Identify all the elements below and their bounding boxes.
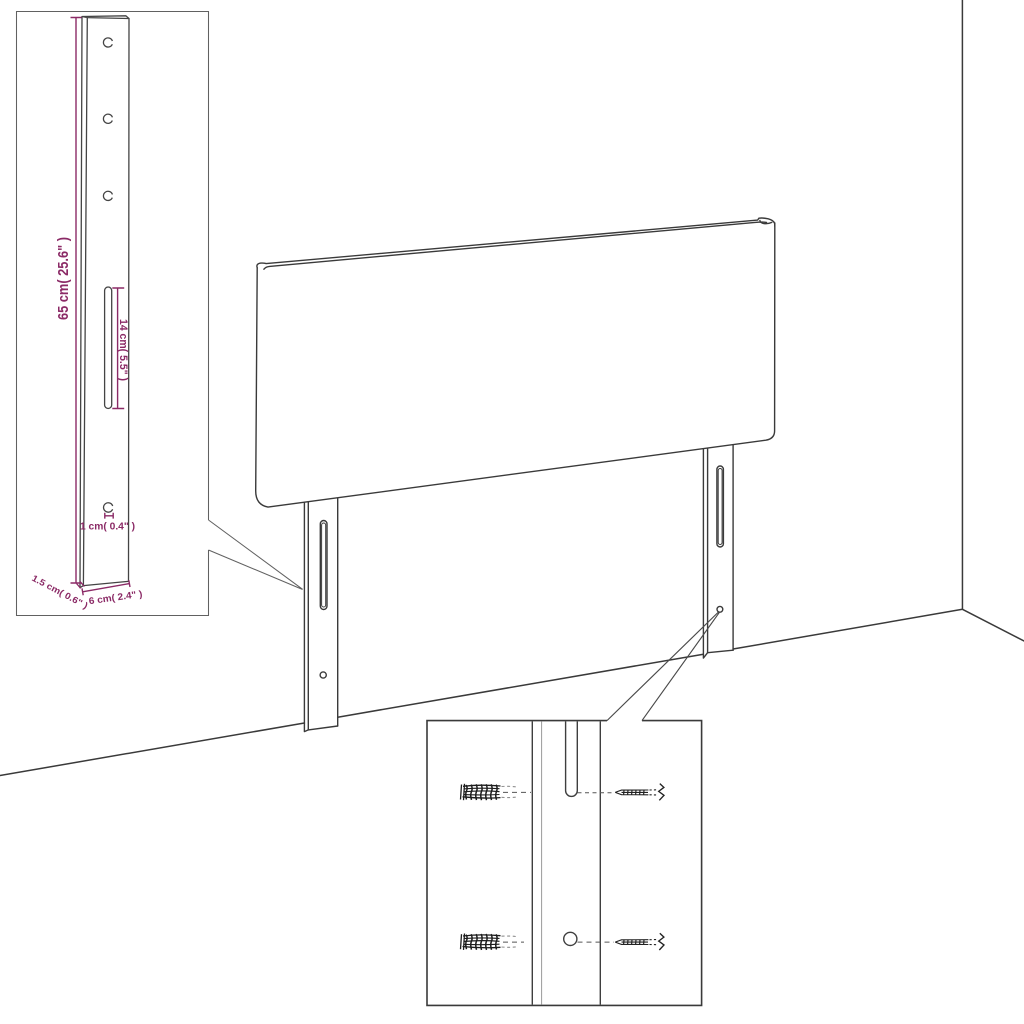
svg-text:1 cm( 0.4" ): 1 cm( 0.4" ) <box>80 522 135 533</box>
svg-text:14 cm( 5.5" ): 14 cm( 5.5" ) <box>117 319 129 381</box>
svg-text:65 cm( 25.6" ): 65 cm( 25.6" ) <box>56 237 72 320</box>
svg-text:1.5 cm( 0.6" ): 1.5 cm( 0.6" ) <box>30 573 89 611</box>
svg-text:6 cm( 2.4" ): 6 cm( 2.4" ) <box>88 589 143 607</box>
